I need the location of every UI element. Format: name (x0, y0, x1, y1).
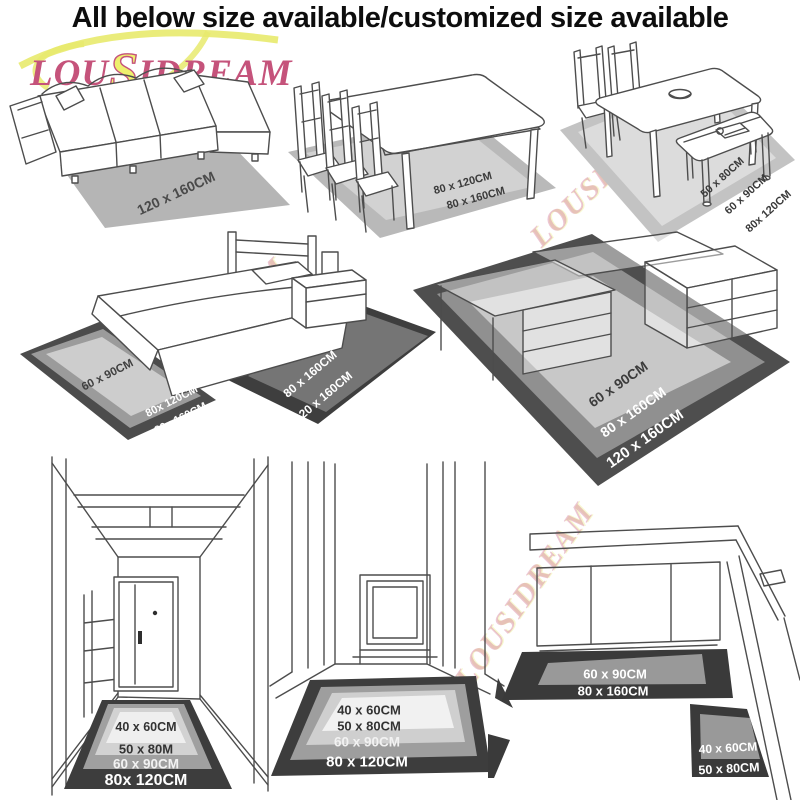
dining-table-illustration (276, 48, 560, 238)
rug-size-label: 40 x 60CM (337, 704, 401, 717)
rug-size-label: 50 x 80CM (337, 720, 401, 733)
rug-size-label: 40 x 60CM (698, 740, 757, 755)
rug-size-label: 60 x 90CM (583, 668, 647, 681)
scene-dining-table (276, 48, 560, 238)
rug-size-label: 80x 120CM (105, 773, 188, 789)
product-size-infographic: All below size available/customized size… (0, 0, 800, 800)
cutoff-rug-corner (488, 734, 510, 778)
door-peephole (153, 611, 157, 615)
rug-size-label: 60 x 90CM (334, 735, 400, 749)
rug-size-label: 50 x 80CM (698, 761, 760, 777)
rug-size-label: 80 x 160CM (578, 685, 649, 698)
scene-bedroom (0, 228, 440, 460)
bedroom-illustration (0, 228, 440, 460)
rug-size-label: 50 x 80M (119, 743, 173, 756)
rug-size-label: 60 x 90CM (113, 757, 179, 771)
rug-size-label: 40 x 60CM (115, 721, 176, 734)
rug-size-label: 80 x 120CM (326, 755, 408, 770)
door-handle (138, 631, 142, 644)
